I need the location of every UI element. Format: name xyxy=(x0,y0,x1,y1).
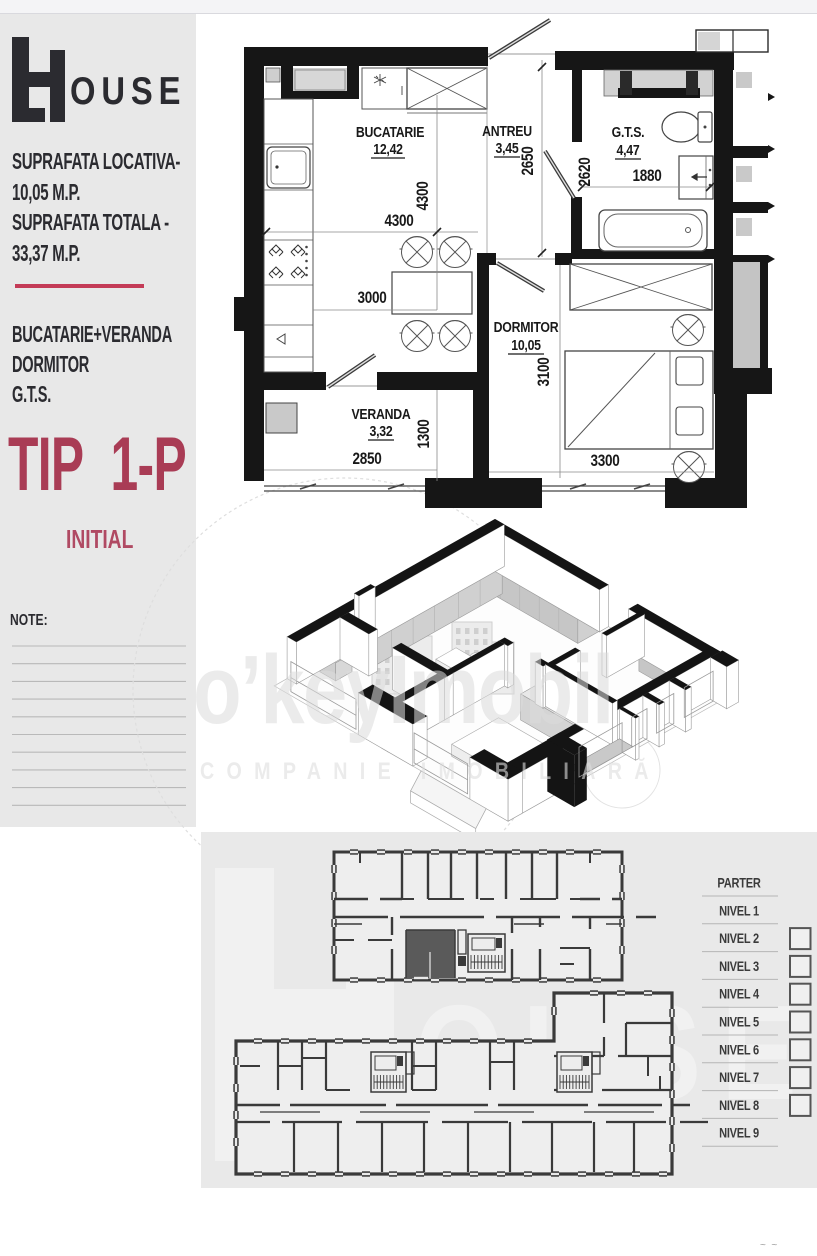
svg-text:3,32: 3,32 xyxy=(370,423,394,439)
svg-text:12,42: 12,42 xyxy=(373,141,403,157)
svg-text:NIVEL 2: NIVEL 2 xyxy=(719,931,759,946)
svg-text:4300: 4300 xyxy=(414,181,433,210)
svg-text:NIVEL 3: NIVEL 3 xyxy=(719,959,759,974)
svg-text:NIVEL 8: NIVEL 8 xyxy=(719,1098,759,1113)
svg-text:NIVEL 7: NIVEL 7 xyxy=(719,1070,759,1085)
svg-text:VERANDA: VERANDA xyxy=(351,406,410,422)
svg-text:NIVEL 9: NIVEL 9 xyxy=(719,1126,759,1141)
svg-text:ANTREU: ANTREU xyxy=(482,123,532,139)
svg-text:OUSE: OUSE xyxy=(70,68,186,112)
svg-text:2850: 2850 xyxy=(352,450,381,469)
svg-text:2650: 2650 xyxy=(519,146,538,175)
svg-text:NIVEL 5: NIVEL 5 xyxy=(719,1014,759,1029)
svg-text:DORMITOR: DORMITOR xyxy=(494,319,559,335)
svg-text:3100: 3100 xyxy=(535,357,554,386)
svg-text:BUCATARIE: BUCATARIE xyxy=(356,124,424,140)
svg-text:G.T.S.: G.T.S. xyxy=(612,124,645,140)
svg-text:4,47: 4,47 xyxy=(617,142,641,158)
svg-text:1880: 1880 xyxy=(632,167,661,186)
svg-text:NIVEL 1: NIVEL 1 xyxy=(719,903,759,918)
svg-text:4300: 4300 xyxy=(384,212,413,231)
svg-text:10,05: 10,05 xyxy=(511,337,541,353)
svg-text:3000: 3000 xyxy=(357,289,386,308)
svg-text:2620: 2620 xyxy=(576,157,595,186)
svg-text:NIVEL 6: NIVEL 6 xyxy=(719,1042,759,1057)
svg-text:1300: 1300 xyxy=(415,419,434,448)
svg-text:NIVEL 4: NIVEL 4 xyxy=(719,987,759,1002)
svg-text:PARTER: PARTER xyxy=(717,875,760,890)
svg-text:3300: 3300 xyxy=(590,452,619,471)
svg-text:3,45: 3,45 xyxy=(496,140,520,156)
